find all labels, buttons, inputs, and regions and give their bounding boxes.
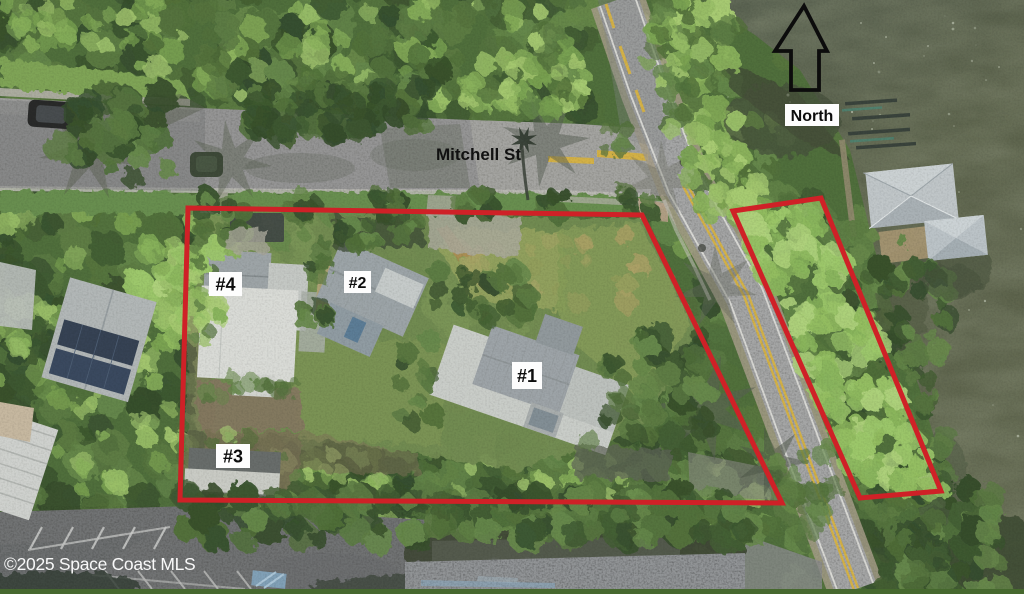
svg-text:Mitchell St: Mitchell St [436,145,521,164]
svg-text:#4: #4 [215,274,235,294]
svg-text:North: North [791,108,834,125]
svg-text:#1: #1 [517,366,537,386]
svg-text:#2: #2 [349,275,367,292]
svg-text:©2025 Space Coast MLS: ©2025 Space Coast MLS [4,554,195,574]
svg-text:#3: #3 [223,446,243,466]
